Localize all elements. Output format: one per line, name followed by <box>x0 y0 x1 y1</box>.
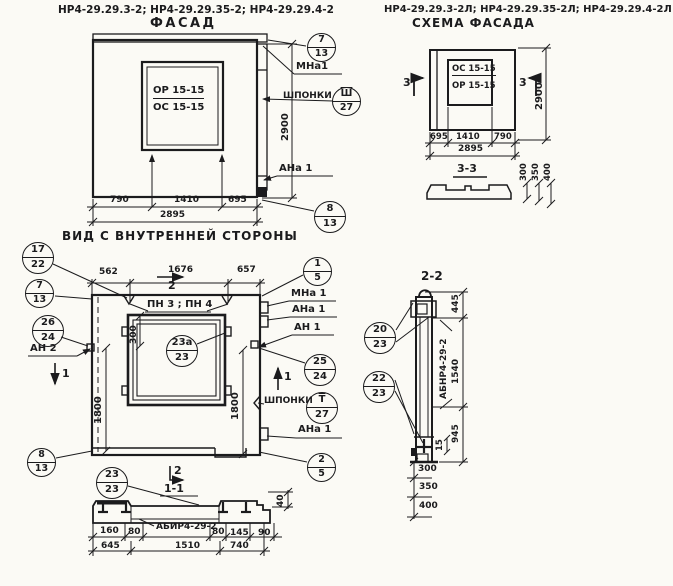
schema-dim-2895: 2895 <box>458 145 483 154</box>
inner-dim-1800-left: 1800 <box>94 396 105 424</box>
inner-dim-1676: 1676 <box>168 266 193 275</box>
section-mark-2-top: 2 <box>168 280 176 292</box>
callout-22-23: 2223 <box>363 371 395 403</box>
inner-dim-562: 562 <box>99 268 118 277</box>
facade-title: ФАСАД <box>150 17 217 31</box>
dim-790: 790 <box>110 196 129 205</box>
section-mark-2-bottom: 2 <box>174 465 182 477</box>
s11-dim-645: 645 <box>101 542 120 551</box>
callout-7-13: 713 <box>307 33 336 62</box>
s22-dim-945: 945 <box>452 424 461 443</box>
s22-dim-1540: 1540 <box>452 359 461 384</box>
label-pn3-pn4: ПН 3 ; ПН 4 <box>147 300 212 311</box>
callout-sh-27: Ш27 <box>332 87 361 116</box>
schema-dim-2900: 2900 <box>535 82 546 110</box>
schema-title: СХЕМА ФАСАДА <box>412 17 535 30</box>
callout-t-27: Т27 <box>306 392 338 424</box>
section-mark-1-left: 1 <box>62 368 70 380</box>
beam-mark-abir: АБИР4-29-2 <box>156 523 216 532</box>
s11-dim-145: 145 <box>230 529 249 538</box>
dim-2900: 2900 <box>281 113 292 141</box>
drawing-sheet: НР4-29.29.3-2; НР4-29.29.35-2; НР4-29.29… <box>0 0 673 586</box>
label-ana1b-inner: АНа 1 <box>298 425 331 436</box>
schema-window-mark-top: ОС 15-15 <box>452 65 496 76</box>
s11-dim-40: 40 <box>277 494 286 507</box>
section-mark-3-right: 3 <box>519 77 527 89</box>
label-shponki: ШПОНКИ <box>283 92 332 101</box>
facade-window-mark-bottom: ОС 15-15 <box>153 103 204 114</box>
callout-25-24: 2524 <box>304 354 336 386</box>
schema-dim-1410: 1410 <box>456 133 480 142</box>
callout-8-13-inner: 813 <box>27 448 56 477</box>
s11-dim-740: 740 <box>230 542 249 551</box>
callout-26-24: 2624 <box>32 315 64 347</box>
s11-dim-80a: 80 <box>128 528 141 537</box>
callout-7-13-inner: 713 <box>25 279 54 308</box>
callout-2-5: 25 <box>307 453 336 482</box>
schema-dim-790: 790 <box>494 133 512 142</box>
inner-dim-300: 300 <box>130 325 139 344</box>
s22-dim-400: 400 <box>419 502 438 511</box>
dim-1410: 1410 <box>174 196 199 205</box>
label-mna1-inner: МНа 1 <box>291 289 327 300</box>
label-ana1-inner: АНа 1 <box>292 305 325 316</box>
section-mark-1-right: 1 <box>284 371 292 383</box>
label-ana1: АНа 1 <box>279 164 312 175</box>
facade-codes: НР4-29.29.3-2; НР4-29.29.35-2; НР4-29.29… <box>58 5 334 16</box>
callout-8-13: 813 <box>314 201 346 233</box>
s11-dim-160: 160 <box>100 527 119 536</box>
inner-dim-1800-right: 1800 <box>231 392 242 420</box>
s22-dim-300: 300 <box>418 465 437 474</box>
profile-dim-300: 300 <box>520 163 529 181</box>
inner-view-caption: ВИД С ВНУТРЕННЕЙ СТОРОНЫ <box>62 230 298 243</box>
dim-695: 695 <box>228 196 247 205</box>
section-3-3-title: 3-3 <box>457 163 477 175</box>
s11-dim-90: 90 <box>258 529 271 538</box>
facade-window-mark-top: ОР 15-15 <box>153 86 204 99</box>
section-1-1-title: 1-1 <box>164 483 184 495</box>
s11-dim-1510: 1510 <box>175 542 200 551</box>
section-2-2-title: 2-2 <box>421 270 443 283</box>
callout-1-5: 15 <box>303 257 332 286</box>
s22-dim-350: 350 <box>419 483 438 492</box>
inner-dim-657: 657 <box>237 266 256 275</box>
schema-dim-695: 695 <box>430 133 448 142</box>
dim-2895: 2895 <box>160 211 185 220</box>
callout-20-23: 2023 <box>364 322 396 354</box>
callout-17-22: 1722 <box>22 242 54 274</box>
label-mna1: МНа1 <box>296 62 328 73</box>
callout-23a-23: 23а23 <box>166 335 198 367</box>
s22-dim-15: 15 <box>436 439 445 451</box>
schema-window-mark-bottom: ОР 15-15 <box>452 82 496 91</box>
s22-dim-445: 445 <box>452 294 461 313</box>
callout-23-23: 2323 <box>96 467 128 499</box>
s11-dim-80b: 80 <box>212 528 225 537</box>
label-an1-inner: АН 1 <box>294 323 321 334</box>
profile-dim-400: 400 <box>544 163 553 181</box>
profile-dim-350: 350 <box>532 163 541 181</box>
beam-mark-abnr: АБНР4-29-2 <box>440 339 449 399</box>
schema-codes: НР4-29.29.3-2Л; НР4-29.29.35-2Л; НР4-29.… <box>384 5 672 16</box>
section-mark-3-left: 3 <box>403 77 411 89</box>
